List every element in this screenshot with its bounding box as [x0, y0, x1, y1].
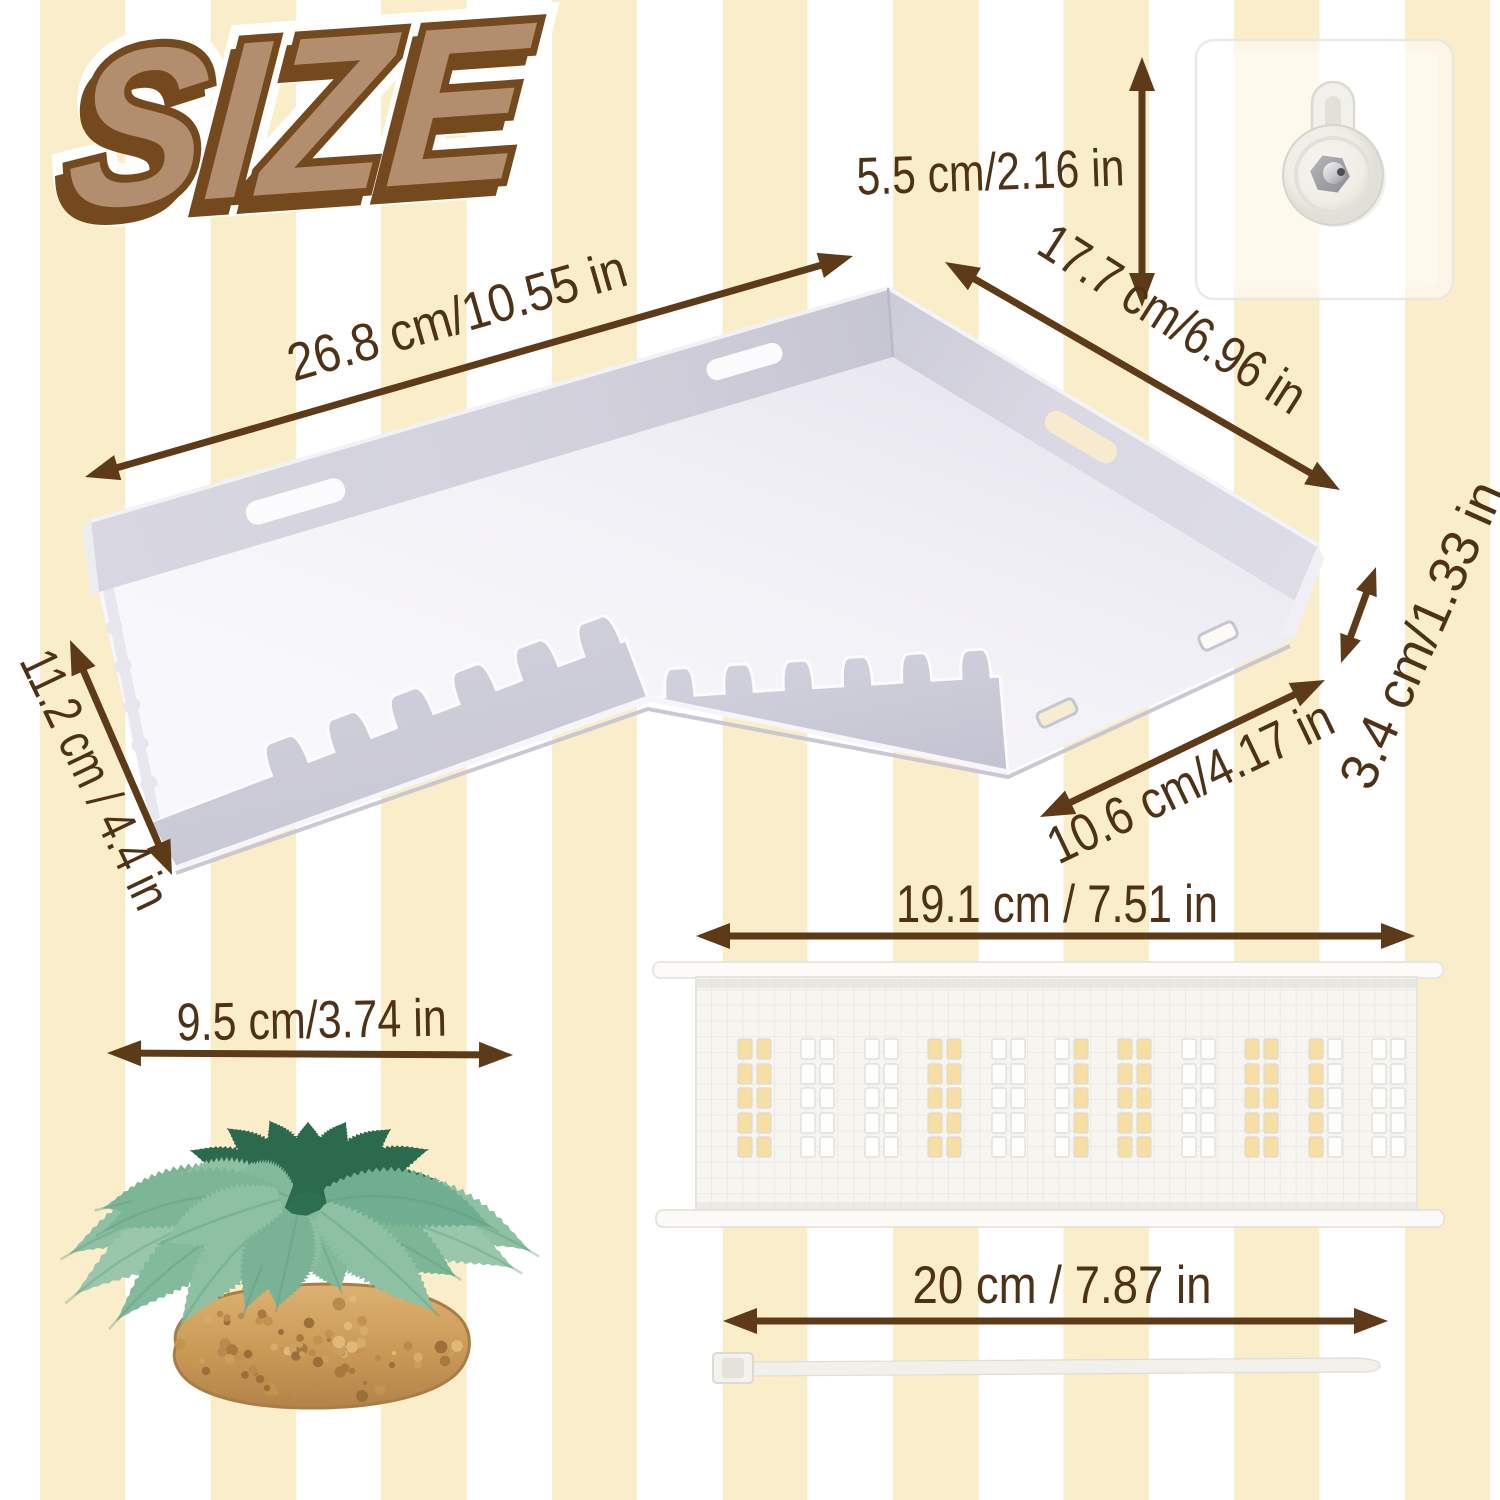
svg-text:5.5 cm/2.16 in: 5.5 cm/2.16 in	[855, 138, 1125, 206]
svg-text:9.5 cm/3.74 in: 9.5 cm/3.74 in	[176, 989, 447, 1053]
svg-text:SIZE: SIZE	[61, 0, 542, 257]
svg-text:20 cm / 7.87 in: 20 cm / 7.87 in	[913, 1256, 1212, 1315]
svg-text:19.1 cm / 7.51 in: 19.1 cm / 7.51 in	[896, 875, 1218, 934]
